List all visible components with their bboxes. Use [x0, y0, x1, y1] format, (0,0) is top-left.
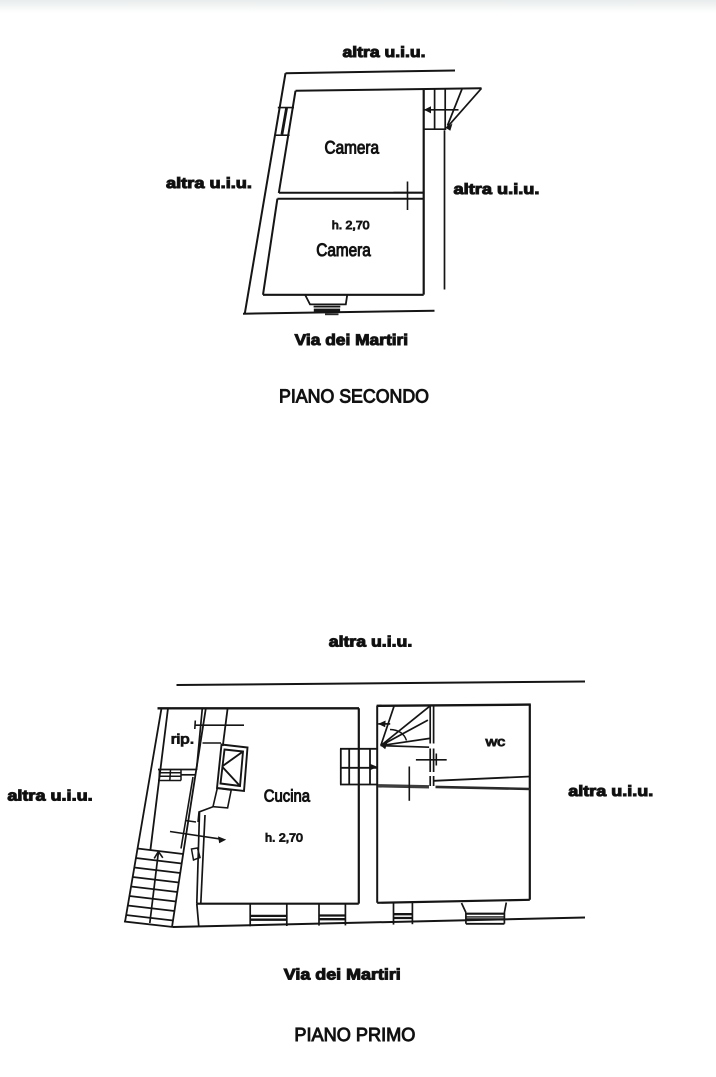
svg-text:altra u.i.u.: altra u.i.u.: [343, 44, 426, 61]
svg-text:PIANO PRIMO: PIANO PRIMO: [294, 1025, 415, 1046]
svg-text:h. 2,70: h. 2,70: [265, 833, 303, 845]
svg-text:altra u.i.u.: altra u.i.u.: [454, 181, 540, 198]
svg-text:h. 2,70: h. 2,70: [332, 220, 370, 232]
svg-text:Camera: Camera: [316, 240, 371, 260]
svg-text:Camera: Camera: [325, 137, 380, 157]
svg-text:Via dei Martiri: Via dei Martiri: [295, 332, 409, 349]
svg-text:Cucina: Cucina: [264, 787, 311, 806]
svg-text:wc: wc: [484, 734, 505, 749]
svg-text:PIANO SECONDO: PIANO SECONDO: [279, 387, 429, 408]
svg-text:altra u.i.u.: altra u.i.u.: [7, 788, 92, 805]
svg-text:Via dei Martiri: Via dei Martiri: [284, 967, 401, 984]
svg-text:altra u.i.u.: altra u.i.u.: [329, 634, 413, 651]
svg-text:altra u.i.u.: altra u.i.u.: [568, 783, 653, 800]
svg-text:altra u.i.u.: altra u.i.u.: [166, 175, 252, 192]
svg-text:rip.: rip.: [171, 732, 194, 747]
